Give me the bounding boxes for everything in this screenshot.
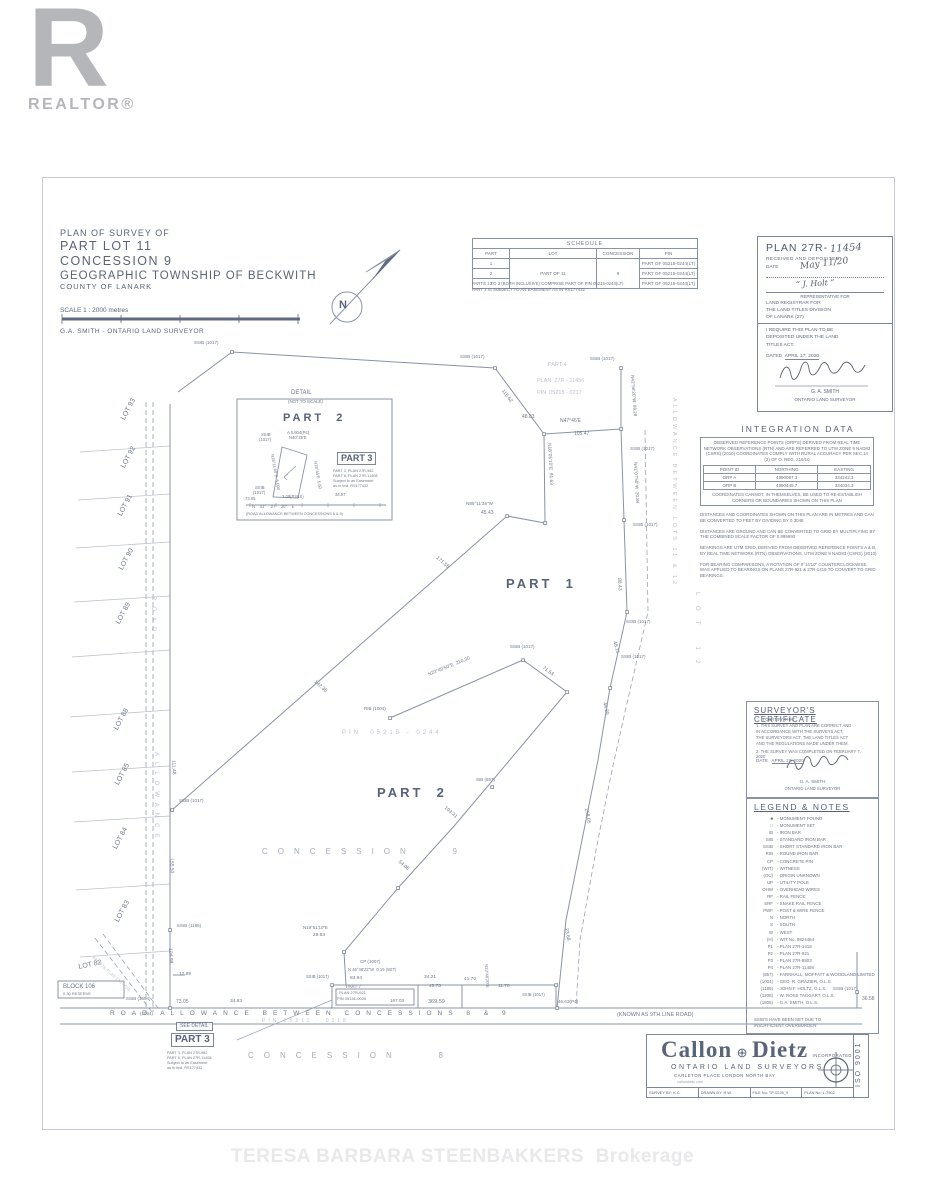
drawing-label: SSIB (1017) (630, 447, 655, 452)
drawing-label: PART 4 (548, 363, 567, 369)
drawing-label: N18°05'10"E 91.63 (545, 443, 552, 485)
drawing-label: CP (1007) (360, 960, 380, 965)
drawing-label: ALLOWANCE BETWEEN LOTS 11 & 12 (671, 398, 677, 587)
brokerage-watermark: TERESA BARBARA STEENBAKKERS Brokerage (231, 1146, 694, 1168)
drawing-label: BLOCK 106 (63, 984, 95, 990)
drawing-label: SSIB (1017) (633, 523, 658, 528)
drawing-label: SSIB (1017) (833, 987, 858, 992)
drawing-label: SSIB (1017) (460, 355, 485, 360)
drawing-label: 73.05 (245, 497, 255, 501)
drawing-label: 83.94 (350, 977, 362, 982)
drawing-label: SEE DETAIL (176, 1022, 213, 1031)
drawing-label: 71.53 (541, 666, 554, 677)
drawing-label: ALLOWANCE (153, 752, 159, 843)
drawing-label: N16°11'40"E 5.693 (270, 454, 280, 490)
drawing-label: PLAN 27R-921 (339, 991, 366, 995)
drawing-label: 73.05 (176, 1000, 189, 1005)
drawing-label: PART 7 (346, 985, 361, 989)
drawing-label: PART 3 (171, 1033, 214, 1047)
drawing-label: (1094) (140, 1012, 153, 1017)
drawing-label: N 46°48'22"W 0.15 (WIT) (348, 968, 396, 972)
drawing-label: 54.06 (397, 860, 410, 872)
drawing-label: SSIB (1017) (626, 620, 651, 625)
drawing-label: 142.36 (313, 680, 328, 694)
drawing-label: SSIB (1017) (306, 975, 329, 979)
drawing-label: LOT 90 (118, 547, 135, 571)
drawing-label: LOT 88 (113, 707, 130, 731)
drawing-label: 258.05 (583, 808, 591, 824)
drawing-label: SSIB (1185) (177, 924, 201, 929)
drawing-label: as in Inst. RS177432 (167, 1067, 202, 1071)
drawing-label: N42°56'20"W 88.28 (629, 375, 636, 417)
drawing-label: PIN 05215 - 0217 (537, 391, 582, 397)
drawing-label: 193.31 (443, 806, 458, 820)
drawing-label: 12.89 (179, 973, 191, 978)
drawing-label: PIN 05211 - 0218 (262, 1019, 349, 1024)
drawing-label: ROAD (150, 596, 156, 637)
drawing-label: (KNOWN AS 9TH LINE ROAD) (617, 1013, 693, 1019)
drawing-label: RIB (1004) (364, 707, 386, 712)
drawing-label: LOT 85 (114, 762, 131, 786)
drawing-label: (1017) (259, 438, 271, 442)
drawing-label: 48.83 (522, 415, 535, 420)
drawing-label: N (339, 300, 347, 311)
drawing-label: LOT 93 (120, 397, 137, 421)
drawing-label: 23.68 (563, 928, 570, 941)
drawing-labels-layer: LOT 93LOT 92LOT 91LOT 90LOT 89LOT 88LOT … (0, 0, 925, 1200)
drawing-label: SSIB (1017) (194, 341, 219, 346)
drawing-label: N41°07'50"W 20.84 (632, 462, 639, 504)
drawing-label: N18°45'E 5.60 (313, 461, 322, 489)
drawing-label: 111.48 (170, 760, 176, 775)
drawing-label: LOT 83 (114, 899, 131, 923)
drawing-label: 45.73 (429, 985, 441, 990)
drawing-label: LOT 89 (115, 601, 132, 625)
drawing-label: DETAIL (291, 390, 312, 396)
drawing-label: N 43° 27' 30" E (252, 505, 294, 509)
drawing-label: 48.11 (611, 641, 620, 654)
drawing-label: PART 3 (337, 452, 376, 465)
drawing-label: 41.70 (464, 978, 476, 983)
drawing-label: N23°40'50"E 210.30 (428, 657, 471, 678)
drawing-label: CONCESSION 8 (248, 1052, 453, 1060)
drawing-label: SSIB (1017) (522, 993, 545, 997)
drawing-label: PART 2 (377, 786, 447, 799)
drawing-label: PIN 05151-0005 (337, 997, 366, 1001)
drawing-label: 171.55 (435, 556, 450, 570)
drawing-label: 167.03 (390, 999, 404, 1004)
drawing-label: PART 1 (506, 577, 576, 590)
drawing-label: N40°25'E (289, 436, 307, 440)
drawing-label: 28.63 (313, 934, 325, 939)
drawing-label: LOT 84 (112, 826, 129, 850)
drawing-label: 34.97 (335, 493, 345, 497)
drawing-label: 44.20 (601, 702, 609, 715)
drawing-label: 116.62 (500, 389, 513, 404)
drawing-label: SSIB (1017) (621, 655, 646, 660)
drawing-label: LOT 12 (694, 592, 701, 674)
drawing-label: PART 2 (283, 413, 345, 424)
drawing-label: ROAD ALLOWANCE BETWEEN CONCESSIONS 8 & 9 (110, 1011, 512, 1018)
drawing-label: 104.98 (167, 948, 173, 964)
drawing-label: as in Inst. RS177432 (333, 485, 368, 489)
drawing-label: SSIB (1694) (126, 997, 151, 1002)
drawing-label: 105.47 (574, 432, 589, 437)
drawing-label: SSIB (1017) (179, 799, 204, 804)
drawing-label: SSIB (1017) (590, 357, 615, 362)
drawing-label: 45.43 (481, 511, 494, 516)
drawing-label: SSIB (1017) (510, 645, 535, 650)
drawing-label: N47°46'E (560, 419, 581, 424)
drawing-label: SIB (857) (476, 778, 495, 783)
drawing-label: 0.30 RESERVE (63, 992, 91, 996)
drawing-label: N85°11'35"W (466, 502, 493, 507)
drawing-label: LOT 91 (117, 493, 134, 517)
drawing-label: 369.59 (428, 1000, 445, 1006)
drawing-label: (NOT TO SCALE) (288, 400, 323, 404)
drawing-label: 155.50 (168, 858, 174, 874)
drawing-label: (1017) (253, 491, 265, 495)
drawing-label: PIN 05215 - 0244 (342, 730, 442, 736)
drawing-label: 11.70 (498, 985, 510, 990)
drawing-label: 34.83 (230, 1000, 242, 1005)
drawing-label: 88.43 (616, 578, 621, 591)
drawing-label: 46.63(P4) (558, 1000, 578, 1005)
drawing-label: (ROAD ALLOWANCE BETWEEN CONCESSIONS 8 & … (246, 513, 343, 517)
drawing-label: N13°46'20"E (484, 964, 489, 988)
drawing-label: LOT 92 (120, 445, 137, 469)
drawing-label: CONCESSION 9 (262, 848, 467, 856)
drawing-label: PLAN 27R - 11456 (537, 379, 584, 385)
drawing-label: 36.58 (862, 997, 875, 1002)
drawing-label: 3.09(P2&S) (282, 495, 304, 499)
drawing-label: N19°51'10"E (303, 926, 328, 930)
drawing-label: PART 73, PLAN 27R-4033 (91, 956, 130, 992)
drawing-label: 34.21 (424, 976, 436, 981)
